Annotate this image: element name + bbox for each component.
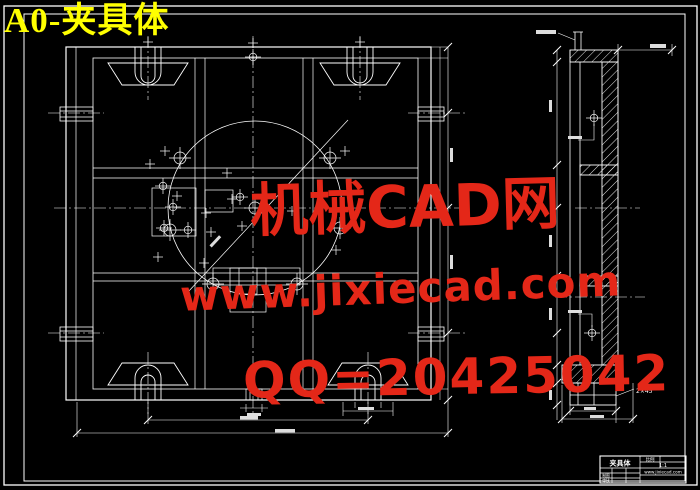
title-block-row-label-2: 审核	[602, 478, 610, 483]
small-holes	[155, 49, 261, 238]
watermark-line-3: QQ=20425042	[243, 344, 671, 409]
section-rib-1	[580, 165, 618, 175]
sheet-border	[4, 6, 697, 485]
title-block-scale-label: 比例	[646, 456, 655, 463]
title-block-part-name: 夹具体	[610, 459, 632, 468]
watermark-line-1: 机械CAD网	[249, 156, 561, 248]
section-right-wall	[602, 62, 618, 365]
section-top-flange	[570, 50, 618, 62]
section-hole-2	[584, 325, 600, 341]
title-block-info: www.jixiecad.com	[644, 470, 682, 475]
cad-screenshot: 2×45° 夹具体 比例 1:1 www.jixiecad.com 制图 审核 …	[0, 0, 700, 490]
section-hole-1	[586, 110, 602, 126]
title-block-scale-value: 1:1	[659, 463, 667, 469]
drawing-title: A0-夹具体	[4, 2, 169, 41]
title-block: 夹具体 比例 1:1 www.jixiecad.com 制图 审核	[600, 456, 686, 483]
